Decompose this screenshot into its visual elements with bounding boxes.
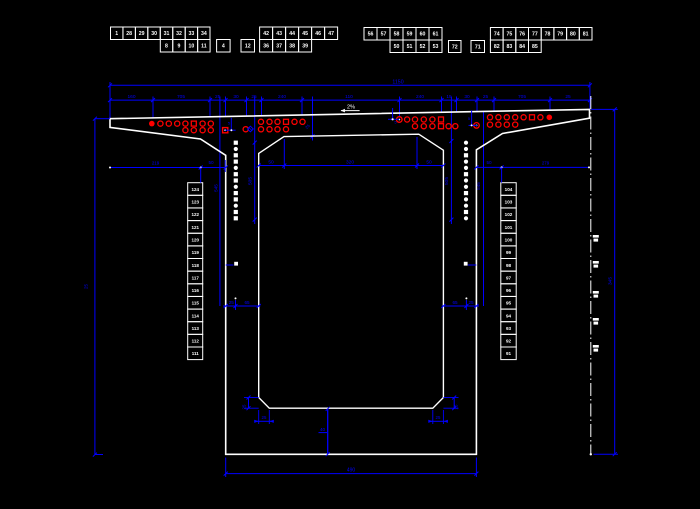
svg-text:112: 112	[192, 339, 200, 344]
svg-text:50: 50	[208, 160, 214, 165]
svg-text:39: 39	[302, 44, 308, 50]
svg-text:103: 103	[505, 200, 513, 205]
svg-text:11: 11	[201, 44, 207, 50]
svg-text:320: 320	[346, 160, 354, 166]
svg-text:240: 240	[278, 94, 286, 100]
svg-text:36: 36	[263, 44, 269, 50]
svg-text:52: 52	[420, 44, 426, 50]
svg-text:45: 45	[302, 31, 308, 37]
svg-text:2%: 2%	[347, 105, 355, 111]
svg-text:113: 113	[192, 326, 200, 331]
svg-text:72: 72	[452, 44, 458, 50]
svg-text:10: 10	[189, 44, 195, 50]
svg-text:100: 100	[505, 238, 513, 243]
svg-text:9: 9	[178, 44, 181, 50]
svg-text:279: 279	[542, 160, 550, 165]
svg-text:705: 705	[518, 94, 526, 100]
svg-text:50: 50	[268, 160, 274, 166]
svg-text:53: 53	[433, 44, 439, 50]
svg-text:51: 51	[407, 44, 413, 50]
svg-text:29: 29	[139, 31, 145, 37]
svg-text:122: 122	[191, 212, 199, 217]
svg-text:25: 25	[454, 404, 459, 409]
svg-text:25: 25	[565, 94, 571, 100]
svg-text:60: 60	[420, 32, 426, 38]
svg-text:160: 160	[127, 94, 135, 100]
svg-text:1150: 1150	[392, 80, 403, 86]
svg-text:121: 121	[191, 225, 199, 230]
svg-text:81: 81	[583, 32, 589, 38]
svg-text:505: 505	[248, 177, 254, 185]
svg-text:28: 28	[126, 31, 132, 37]
svg-text:111: 111	[192, 351, 200, 356]
svg-text:79: 79	[557, 32, 563, 38]
svg-text:65: 65	[452, 300, 458, 305]
svg-text:78: 78	[545, 32, 551, 38]
svg-text:92: 92	[506, 339, 512, 344]
svg-text:83: 83	[507, 44, 513, 50]
svg-text:80: 80	[570, 32, 576, 38]
svg-text:82: 82	[494, 44, 500, 50]
svg-text:110: 110	[345, 94, 353, 100]
svg-text:25: 25	[262, 415, 267, 420]
svg-text:490: 490	[347, 467, 356, 473]
svg-text:96: 96	[506, 288, 512, 293]
svg-text:58: 58	[394, 32, 400, 38]
svg-text:104: 104	[505, 187, 513, 192]
svg-text:59: 59	[407, 32, 413, 38]
svg-text:30: 30	[464, 94, 470, 100]
svg-text:219: 219	[152, 160, 160, 165]
svg-text:34: 34	[201, 31, 207, 37]
svg-text:8: 8	[165, 44, 168, 50]
svg-text:12: 12	[245, 44, 251, 50]
svg-text:50: 50	[394, 44, 400, 50]
svg-text:120: 120	[191, 238, 199, 243]
svg-text:76: 76	[519, 32, 525, 38]
svg-text:25: 25	[242, 404, 247, 409]
svg-text:118: 118	[192, 263, 200, 268]
svg-text:84: 84	[519, 44, 525, 50]
svg-text:4: 4	[222, 44, 225, 50]
svg-text:46: 46	[315, 31, 321, 37]
svg-text:74: 74	[494, 32, 500, 38]
svg-text:94: 94	[506, 313, 512, 318]
svg-text:114: 114	[192, 313, 200, 318]
svg-text:1: 1	[115, 31, 118, 37]
svg-text:25: 25	[251, 94, 257, 100]
svg-text:101: 101	[505, 225, 513, 230]
svg-text:97: 97	[506, 275, 512, 280]
svg-text:33: 33	[189, 31, 195, 37]
svg-text:240: 240	[416, 94, 424, 100]
svg-text:124: 124	[191, 187, 199, 192]
svg-text:115: 115	[192, 301, 200, 306]
svg-text:30: 30	[233, 94, 239, 100]
svg-text:505: 505	[444, 177, 450, 185]
svg-text:91: 91	[506, 351, 512, 356]
svg-text:102: 102	[505, 212, 513, 217]
svg-text:25: 25	[483, 94, 489, 100]
svg-text:25: 25	[83, 284, 88, 290]
svg-text:99: 99	[506, 250, 512, 255]
svg-text:71: 71	[475, 44, 481, 50]
svg-text:117: 117	[192, 275, 200, 280]
svg-text:43: 43	[276, 31, 282, 37]
svg-text:345: 345	[608, 277, 614, 285]
svg-text:85: 85	[532, 44, 538, 50]
svg-text:705: 705	[177, 94, 185, 100]
svg-text:95: 95	[506, 301, 512, 306]
svg-text:25: 25	[436, 415, 441, 420]
svg-text:38: 38	[289, 44, 295, 50]
svg-text:30: 30	[151, 31, 157, 37]
svg-text:61: 61	[433, 32, 439, 38]
svg-text:116: 116	[192, 288, 200, 293]
svg-text:65: 65	[244, 300, 250, 305]
svg-text:57: 57	[381, 32, 387, 38]
svg-text:119: 119	[192, 250, 200, 255]
svg-text:77: 77	[532, 32, 538, 38]
svg-text:40: 40	[320, 427, 326, 432]
svg-text:545: 545	[214, 184, 219, 192]
svg-text:42: 42	[263, 31, 269, 37]
svg-text:32: 32	[176, 31, 182, 37]
svg-text:93: 93	[506, 326, 512, 331]
svg-text:47: 47	[328, 31, 334, 37]
svg-text:75: 75	[507, 32, 513, 38]
svg-text:56: 56	[368, 32, 374, 38]
svg-text:50: 50	[426, 160, 432, 166]
svg-text:31: 31	[164, 31, 170, 37]
svg-text:44: 44	[289, 31, 295, 37]
svg-text:123: 123	[191, 200, 199, 205]
svg-text:25: 25	[468, 300, 474, 305]
svg-text:25: 25	[229, 300, 235, 305]
svg-text:37: 37	[276, 44, 282, 50]
svg-text:50: 50	[486, 160, 492, 165]
svg-text:98: 98	[506, 263, 512, 268]
